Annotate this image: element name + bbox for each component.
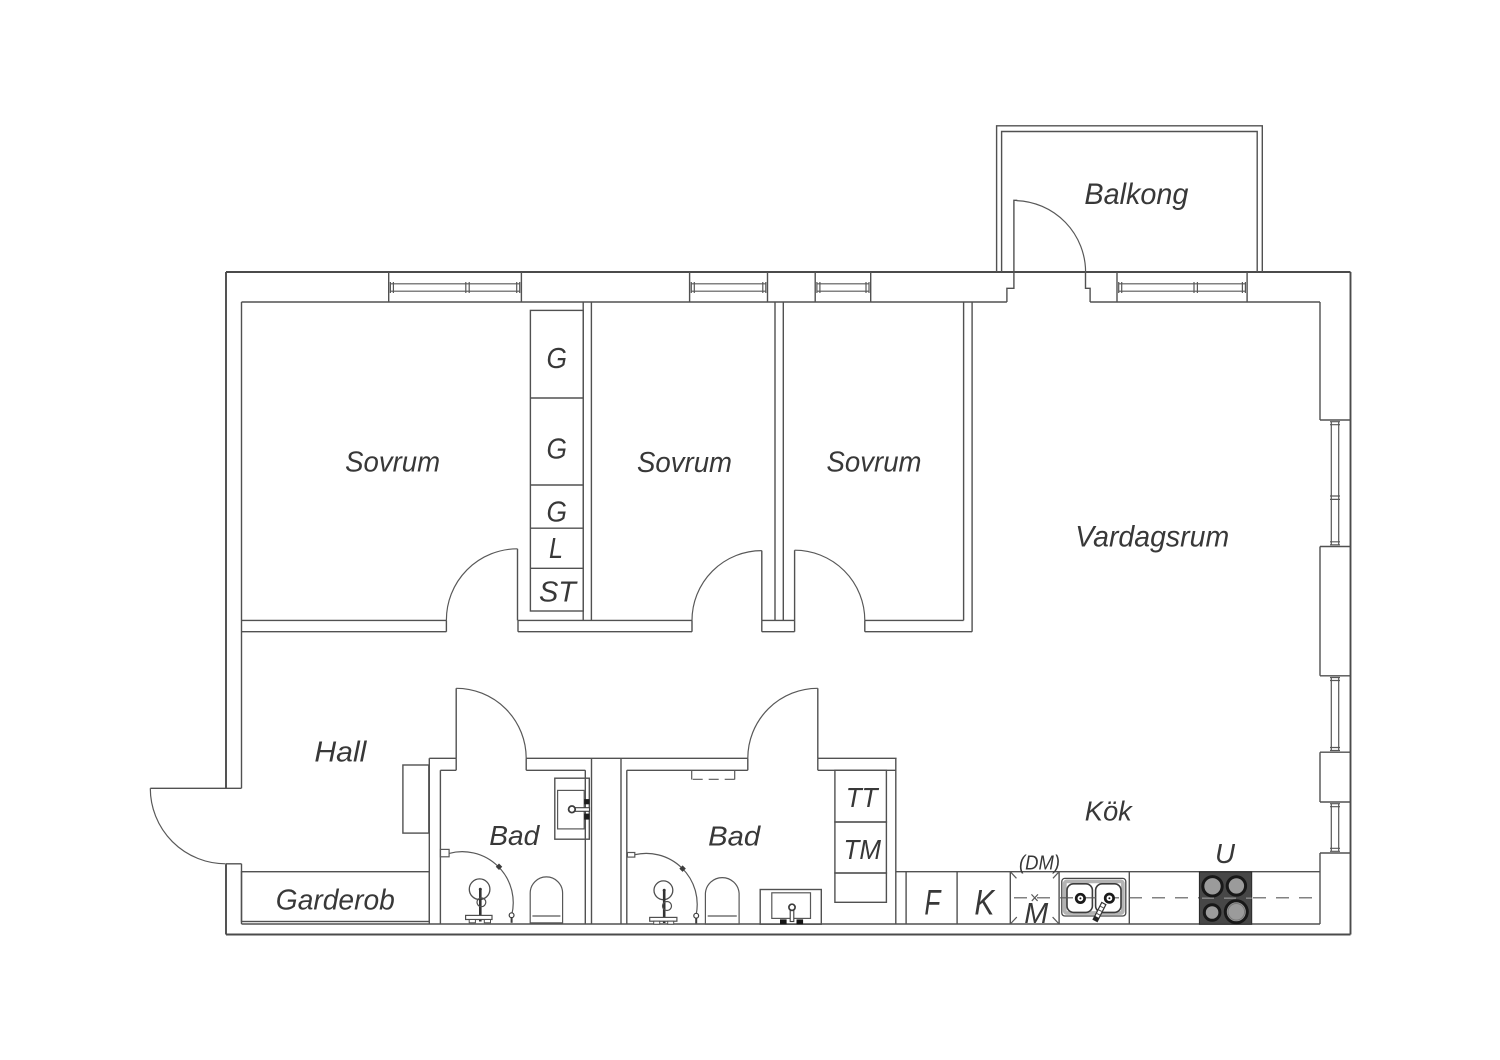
svg-text:G: G [547, 434, 568, 466]
svg-text:(DM): (DM) [1019, 853, 1060, 875]
svg-text:Hall: Hall [314, 736, 368, 768]
svg-text:K: K [974, 884, 995, 923]
svg-text:G: G [547, 497, 568, 529]
svg-text:Sovrum: Sovrum [637, 447, 732, 479]
svg-text:G: G [547, 343, 568, 375]
svg-text:M: M [1024, 898, 1049, 930]
svg-text:U: U [1215, 838, 1236, 869]
svg-text:Bad: Bad [489, 820, 540, 851]
svg-text:Kök: Kök [1085, 796, 1134, 827]
svg-text:Sovrum: Sovrum [345, 447, 440, 479]
svg-text:F: F [924, 884, 942, 923]
svg-text:L: L [549, 533, 563, 565]
svg-text:TT: TT [846, 782, 880, 813]
svg-text:Bad: Bad [708, 820, 761, 851]
svg-text:TM: TM [844, 834, 882, 865]
svg-text:Sovrum: Sovrum [827, 447, 922, 479]
svg-text:Balkong: Balkong [1084, 178, 1188, 211]
svg-text:Garderob: Garderob [276, 885, 395, 917]
svg-text:Vardagsrum: Vardagsrum [1075, 521, 1229, 554]
svg-text:ST: ST [539, 576, 578, 608]
